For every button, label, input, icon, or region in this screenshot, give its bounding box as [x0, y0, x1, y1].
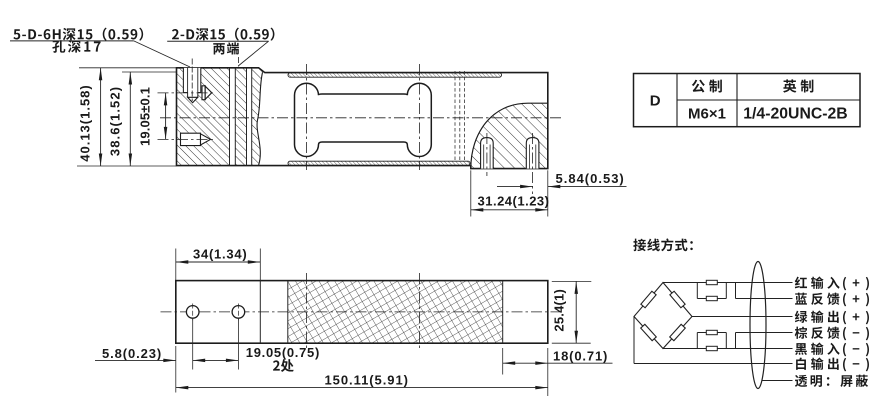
svg-text:D: D [650, 93, 661, 110]
svg-text:18(0.71): 18(0.71) [553, 348, 608, 363]
svg-text:M6×1: M6×1 [688, 105, 726, 122]
svg-text:31.24(1.23): 31.24(1.23) [478, 193, 550, 208]
svg-text:5.8(0.23): 5.8(0.23) [102, 346, 162, 361]
svg-text:150.11(5.91): 150.11(5.91) [325, 372, 409, 387]
svg-text:40.13(1.58): 40.13(1.58) [78, 84, 93, 162]
svg-text:1/4-20UNC-2B: 1/4-20UNC-2B [743, 105, 847, 122]
svg-text:38.6(1.52): 38.6(1.52) [108, 86, 123, 156]
svg-text:25.4(1): 25.4(1) [552, 289, 567, 332]
svg-text:34(1.34): 34(1.34) [193, 247, 247, 262]
svg-text:19.05(0.75): 19.05(0.75) [246, 345, 320, 360]
svg-text:5.84(0.53): 5.84(0.53) [556, 171, 625, 186]
svg-text:19.05±0.1: 19.05±0.1 [138, 87, 153, 146]
